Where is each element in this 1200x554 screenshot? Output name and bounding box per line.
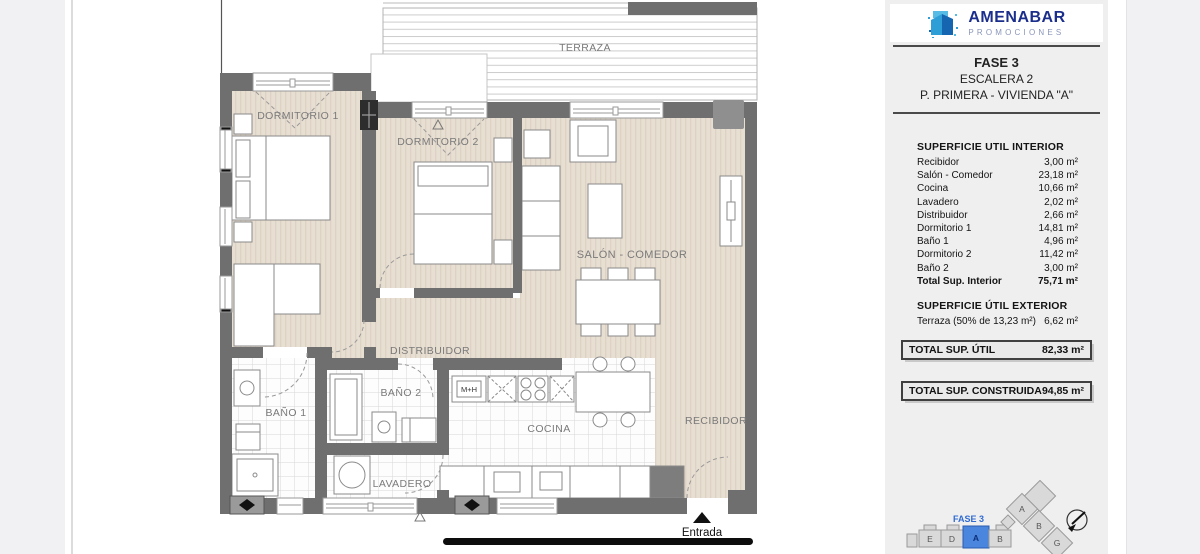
area-row: Distribuidor2,66 m² xyxy=(917,209,1078,222)
row-label: Distribuidor xyxy=(917,209,968,222)
total-construida-box: TOTAL SUP. CONSTRUIDA 94,85 m² xyxy=(901,381,1092,401)
area-row: Terraza (50% de 13,23 m²)6,62 m² xyxy=(917,315,1078,328)
siteplan-fase-label: FASE 3 xyxy=(953,514,984,524)
block-letter-e: E xyxy=(927,534,933,544)
laundry-fixtures xyxy=(334,456,370,494)
entrance: Entrada xyxy=(682,512,723,539)
room-label-bano2: BAÑO 2 xyxy=(381,386,422,399)
block-letter-b: B xyxy=(997,534,1003,544)
area-row: Baño 14,96 m² xyxy=(917,235,1078,248)
row-value: 10,66 m² xyxy=(1039,182,1078,195)
brand-name: AMENABAR xyxy=(968,10,1065,26)
room-label-terraza: TERRAZA xyxy=(559,42,611,54)
brand-tagline: PROMOCIONES xyxy=(968,29,1065,37)
scale-bar xyxy=(443,538,753,545)
interior-total-row: Total Sup. Interior75,71 m² xyxy=(917,275,1078,288)
block-letter-d: D xyxy=(949,534,955,544)
area-row: Lavadero2,02 m² xyxy=(917,196,1078,209)
row-label: Baño 2 xyxy=(917,262,949,275)
total-value: 82,33 m² xyxy=(1042,344,1084,356)
dining-table xyxy=(576,280,660,324)
block-letter-a-highlight: A xyxy=(973,533,979,543)
row-value: 2,02 m² xyxy=(1044,196,1078,209)
row-value: 11,42 m² xyxy=(1039,248,1078,261)
page-left-gutter xyxy=(0,0,65,554)
divider xyxy=(893,45,1100,47)
area-row: Baño 23,00 m² xyxy=(917,262,1078,275)
coffee-table xyxy=(588,184,622,238)
unit-title-block: FASE 3 ESCALERA 2 P. PRIMERA - VIVIENDA … xyxy=(885,50,1108,109)
entrance-arrow-icon xyxy=(693,512,711,523)
page-divider-line xyxy=(71,0,73,554)
row-label: Terraza (50% de 13,23 m²) xyxy=(917,315,1036,328)
total-util-box: TOTAL SUP. ÚTIL 82,33 m² xyxy=(901,340,1092,360)
floorplan-drawing: TERRAZA DORMITORIO 1 DORMITORIO 2 SALÓN … xyxy=(200,0,775,554)
kitchen-peninsula xyxy=(576,372,650,412)
row-label: Lavadero xyxy=(917,196,959,209)
row-value: 23,18 m² xyxy=(1039,169,1078,182)
row-label: Baño 1 xyxy=(917,235,949,248)
row-value: 3,00 m² xyxy=(1044,156,1078,169)
wing-letter-b: B xyxy=(1036,521,1042,531)
row-label: Recibidor xyxy=(917,156,959,169)
room-label-lavadero: LAVADERO xyxy=(373,478,432,490)
interior-header: SUPERFICIE UTIL INTERIOR xyxy=(917,141,1078,153)
compass-icon xyxy=(1067,510,1087,532)
row-label: Total Sup. Interior xyxy=(917,275,1002,288)
site-plan: FASE 3 E D A B A B G xyxy=(885,480,1108,554)
vivienda-title: P. PRIMERA - VIVIENDA "A" xyxy=(885,87,1108,103)
row-value: 6,62 m² xyxy=(1044,315,1078,328)
escalera-title: ESCALERA 2 xyxy=(885,71,1108,87)
room-label-distribuidor: DISTRIBUIDOR xyxy=(390,345,470,357)
area-row: Dormitorio 211,42 m² xyxy=(917,248,1078,261)
fridge xyxy=(650,466,684,498)
info-sidebar: AMENABAR PROMOCIONES FASE 3 ESCALERA 2 P… xyxy=(885,0,1108,554)
row-value: 2,66 m² xyxy=(1044,209,1078,222)
total-value: 94,85 m² xyxy=(1042,385,1084,397)
amenabar-logo-icon xyxy=(927,8,961,38)
row-label: Dormitorio 1 xyxy=(917,222,971,235)
fase-title: FASE 3 xyxy=(885,55,1108,71)
area-row: Recibidor3,00 m² xyxy=(917,156,1078,169)
page-right-gutter xyxy=(1126,0,1200,554)
wing-letter-a: A xyxy=(1019,504,1025,514)
row-label: Salón - Comedor xyxy=(917,169,993,182)
row-label: Cocina xyxy=(917,182,948,195)
sofa xyxy=(522,166,560,270)
window-bay xyxy=(371,54,487,102)
entrance-label: Entrada xyxy=(682,527,723,539)
room-label-bano1: BAÑO 1 xyxy=(266,406,307,419)
brand-logo-box: AMENABAR PROMOCIONES xyxy=(890,4,1103,42)
room-label-cocina: COCINA xyxy=(527,423,570,435)
wing-letter-g: G xyxy=(1054,538,1061,548)
row-value: 4,96 m² xyxy=(1044,235,1078,248)
divider xyxy=(893,112,1100,114)
exterior-header: SUPERFICIE ÚTIL EXTERIOR xyxy=(917,300,1078,312)
area-row: Cocina10,66 m² xyxy=(917,182,1078,195)
surface-table: SUPERFICIE UTIL INTERIOR Recibidor3,00 m… xyxy=(885,117,1108,328)
row-value: 14,81 m² xyxy=(1039,222,1078,235)
room-label-dormitorio2: DORMITORIO 2 xyxy=(397,136,479,148)
row-label: Dormitorio 2 xyxy=(917,248,971,261)
floorplan-page: TERRAZA DORMITORIO 1 DORMITORIO 2 SALÓN … xyxy=(0,0,1200,554)
total-label: TOTAL SUP. CONSTRUIDA xyxy=(909,385,1042,397)
area-row: Salón - Comedor23,18 m² xyxy=(917,169,1078,182)
room-label-dormitorio1: DORMITORIO 1 xyxy=(257,110,339,122)
oven-unit-label: M+H xyxy=(461,385,477,394)
room-label-recibidor: RECIBIDOR xyxy=(685,415,747,427)
row-value: 3,00 m² xyxy=(1044,262,1078,275)
room-label-salon: SALÓN - COMEDOR xyxy=(577,248,688,261)
row-value: 75,71 m² xyxy=(1038,275,1078,288)
area-row: Dormitorio 114,81 m² xyxy=(917,222,1078,235)
total-label: TOTAL SUP. ÚTIL xyxy=(909,344,995,356)
